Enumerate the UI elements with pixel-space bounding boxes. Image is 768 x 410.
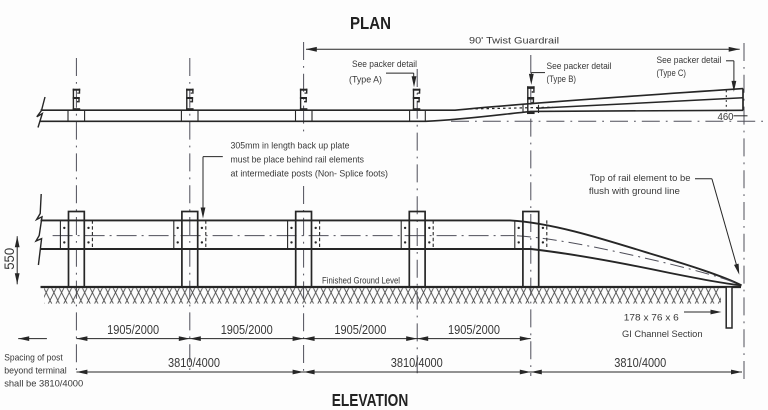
svg-text:305mm in length back up plate: 305mm in length back up plate	[231, 141, 350, 152]
svg-text:1905/2000: 1905/2000	[334, 322, 386, 337]
svg-text:shall be 3810/4000: shall be 3810/4000	[4, 378, 83, 389]
svg-text:PLAN: PLAN	[350, 13, 391, 33]
svg-text:GI Channel Section: GI Channel Section	[622, 329, 703, 340]
svg-text:See packer detail: See packer detail	[547, 61, 612, 72]
svg-text:(Type C): (Type C)	[657, 68, 687, 79]
svg-text:90' Twist Guardrail: 90' Twist Guardrail	[469, 36, 559, 47]
svg-text:178 x 76 x 6: 178 x 76 x 6	[624, 312, 679, 323]
svg-text:3810/4000: 3810/4000	[614, 355, 666, 370]
svg-text:1905/2000: 1905/2000	[107, 322, 159, 337]
svg-text:3810/4000: 3810/4000	[391, 355, 443, 370]
svg-text:Top of rail element to be: Top of rail element to be	[590, 173, 691, 184]
svg-text:See packer detail: See packer detail	[657, 55, 722, 66]
svg-text:(Type A): (Type A)	[349, 74, 382, 85]
svg-text:must be place behind rail elem: must be place behind rail elements	[231, 154, 365, 165]
svg-text:550: 550	[1, 248, 17, 270]
svg-text:flush with ground line: flush with ground line	[589, 186, 680, 197]
svg-text:beyond terminal: beyond terminal	[4, 365, 66, 376]
svg-text:Finished Ground Level: Finished Ground Level	[322, 276, 400, 287]
svg-text:460: 460	[718, 112, 734, 123]
svg-text:(Type B): (Type B)	[547, 74, 577, 85]
svg-text:See packer detail: See packer detail	[352, 59, 417, 70]
svg-text:1905/2000: 1905/2000	[448, 322, 500, 337]
svg-text:3810/4000: 3810/4000	[168, 355, 220, 370]
svg-text:1905/2000: 1905/2000	[221, 322, 273, 337]
svg-text:ELEVATION: ELEVATION	[332, 390, 409, 410]
svg-text:Spacing of post: Spacing of post	[4, 352, 63, 363]
svg-text:at intermediate posts (Non- Sp: at intermediate posts (Non- Splice foots…	[231, 168, 389, 179]
